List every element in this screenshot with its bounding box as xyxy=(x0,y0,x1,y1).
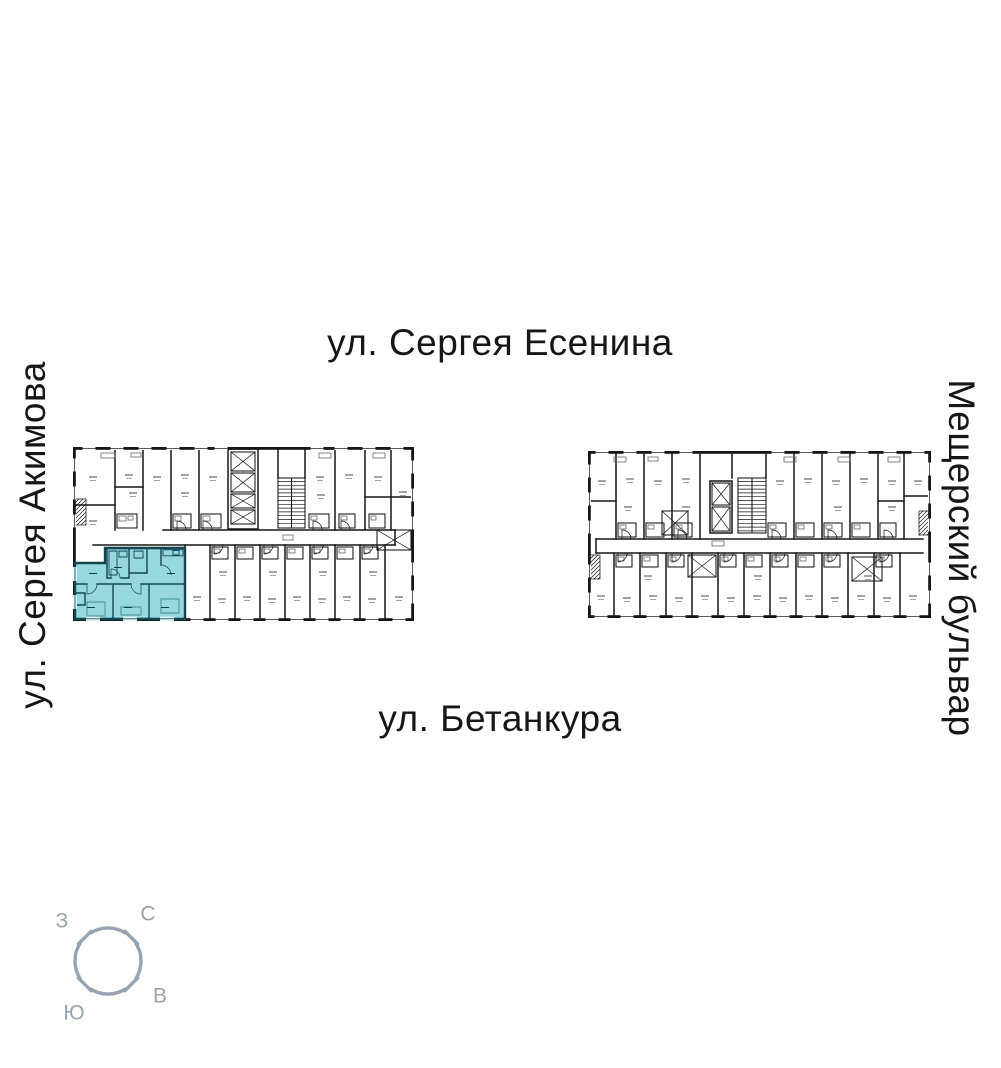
compass-west-label: З xyxy=(56,910,69,933)
compass-east-label: В xyxy=(153,985,167,1008)
compass-tick-sw xyxy=(78,978,91,991)
street-label-top: ул. Сергея Есенина xyxy=(327,322,673,364)
left-building-floor-plan xyxy=(73,447,414,621)
compass-rose: З С В Ю xyxy=(55,895,175,1025)
street-label-bottom: ул. Бетанкура xyxy=(378,698,621,740)
compass-north-label: С xyxy=(140,903,155,926)
compass-tick-se xyxy=(125,978,138,991)
street-label-left: ул. Сергея Акимова xyxy=(12,361,54,709)
right-building-floor-plan xyxy=(588,451,931,618)
compass-circle xyxy=(75,928,141,994)
street-label-right: Мещерский бульвар xyxy=(940,379,982,736)
compass-south-label: Ю xyxy=(63,1002,84,1025)
compass-tick-nw xyxy=(78,931,91,944)
compass-tick-ne xyxy=(125,931,138,944)
